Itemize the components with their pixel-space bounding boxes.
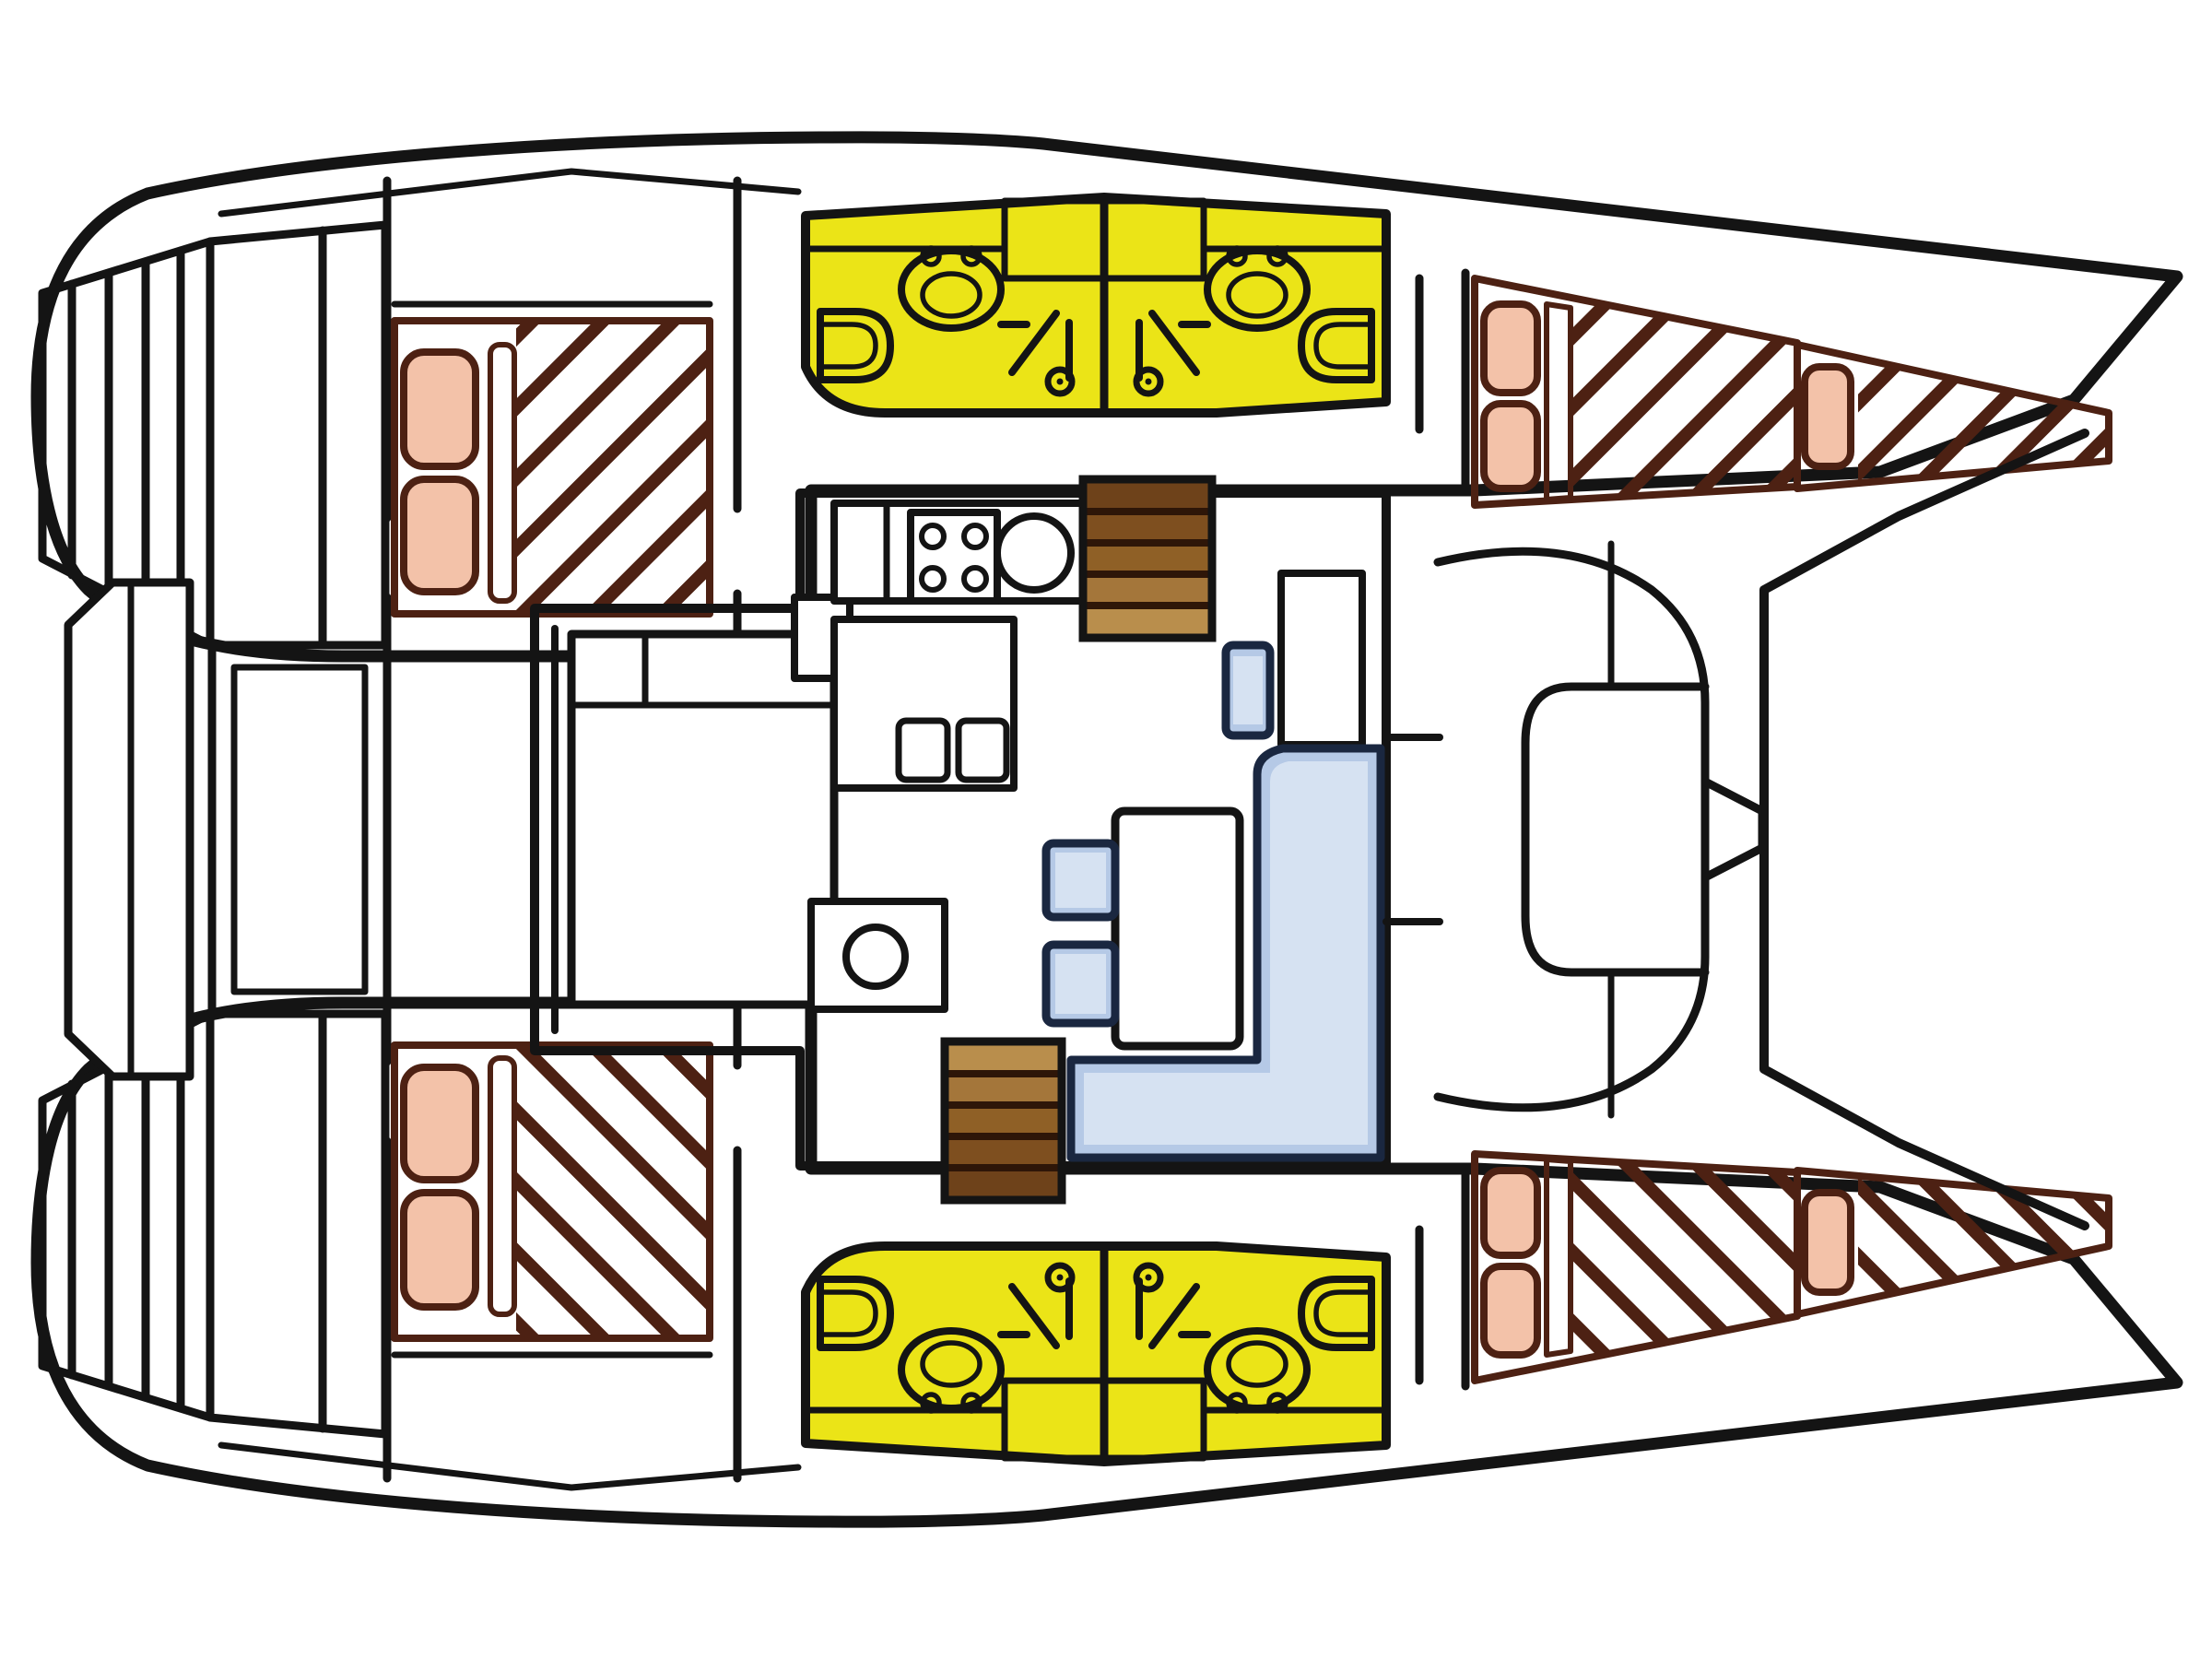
catamaran-floorplan: Hull (upper) — cabins and bathroom Trans…	[0, 0, 2212, 1659]
pillow	[404, 352, 476, 466]
salon-seats: Salon seats	[1046, 843, 1115, 1023]
pillow	[1805, 367, 1851, 466]
fore-bench-inner	[1525, 687, 1705, 972]
galley-twin-sink: Twin square sinks	[834, 619, 1014, 788]
fore-bench-outer	[1438, 551, 1705, 1108]
galley-sink: Round galley sink	[997, 516, 1071, 590]
bathroom: Twin bathrooms (toilet, basin, shower) M…	[806, 197, 1386, 413]
pillow	[1484, 404, 1537, 488]
aft-cockpit: Aft cockpit with bench	[212, 645, 387, 1014]
swim-platform: Aft platform between hulls	[68, 582, 190, 1077]
galley-counter: Galley stove with 4 burners Round galley…	[834, 503, 1083, 601]
foredeck-edge	[1764, 433, 2085, 1226]
pillow	[404, 479, 476, 592]
helm-notch	[1705, 782, 1762, 877]
galley-cabinet	[811, 901, 945, 1009]
nav-table	[1281, 573, 1362, 745]
fore-cockpit: Forward cockpit with C-shaped bench	[1386, 433, 2085, 1226]
salon-table: Salon table	[1115, 811, 1240, 1046]
companionway-a: Companionway steps to upper hull	[1083, 479, 1212, 638]
pillow	[1484, 304, 1537, 393]
companionway-b: Companionway steps to lower hull	[945, 1041, 1062, 1200]
floorplan-stage: Hull (upper) — cabins and bathroom Trans…	[0, 0, 2212, 1659]
nav-station: Chart table	[1226, 573, 1362, 745]
aft-berth	[394, 321, 710, 614]
galley-island: Galley island counter	[571, 634, 834, 1005]
